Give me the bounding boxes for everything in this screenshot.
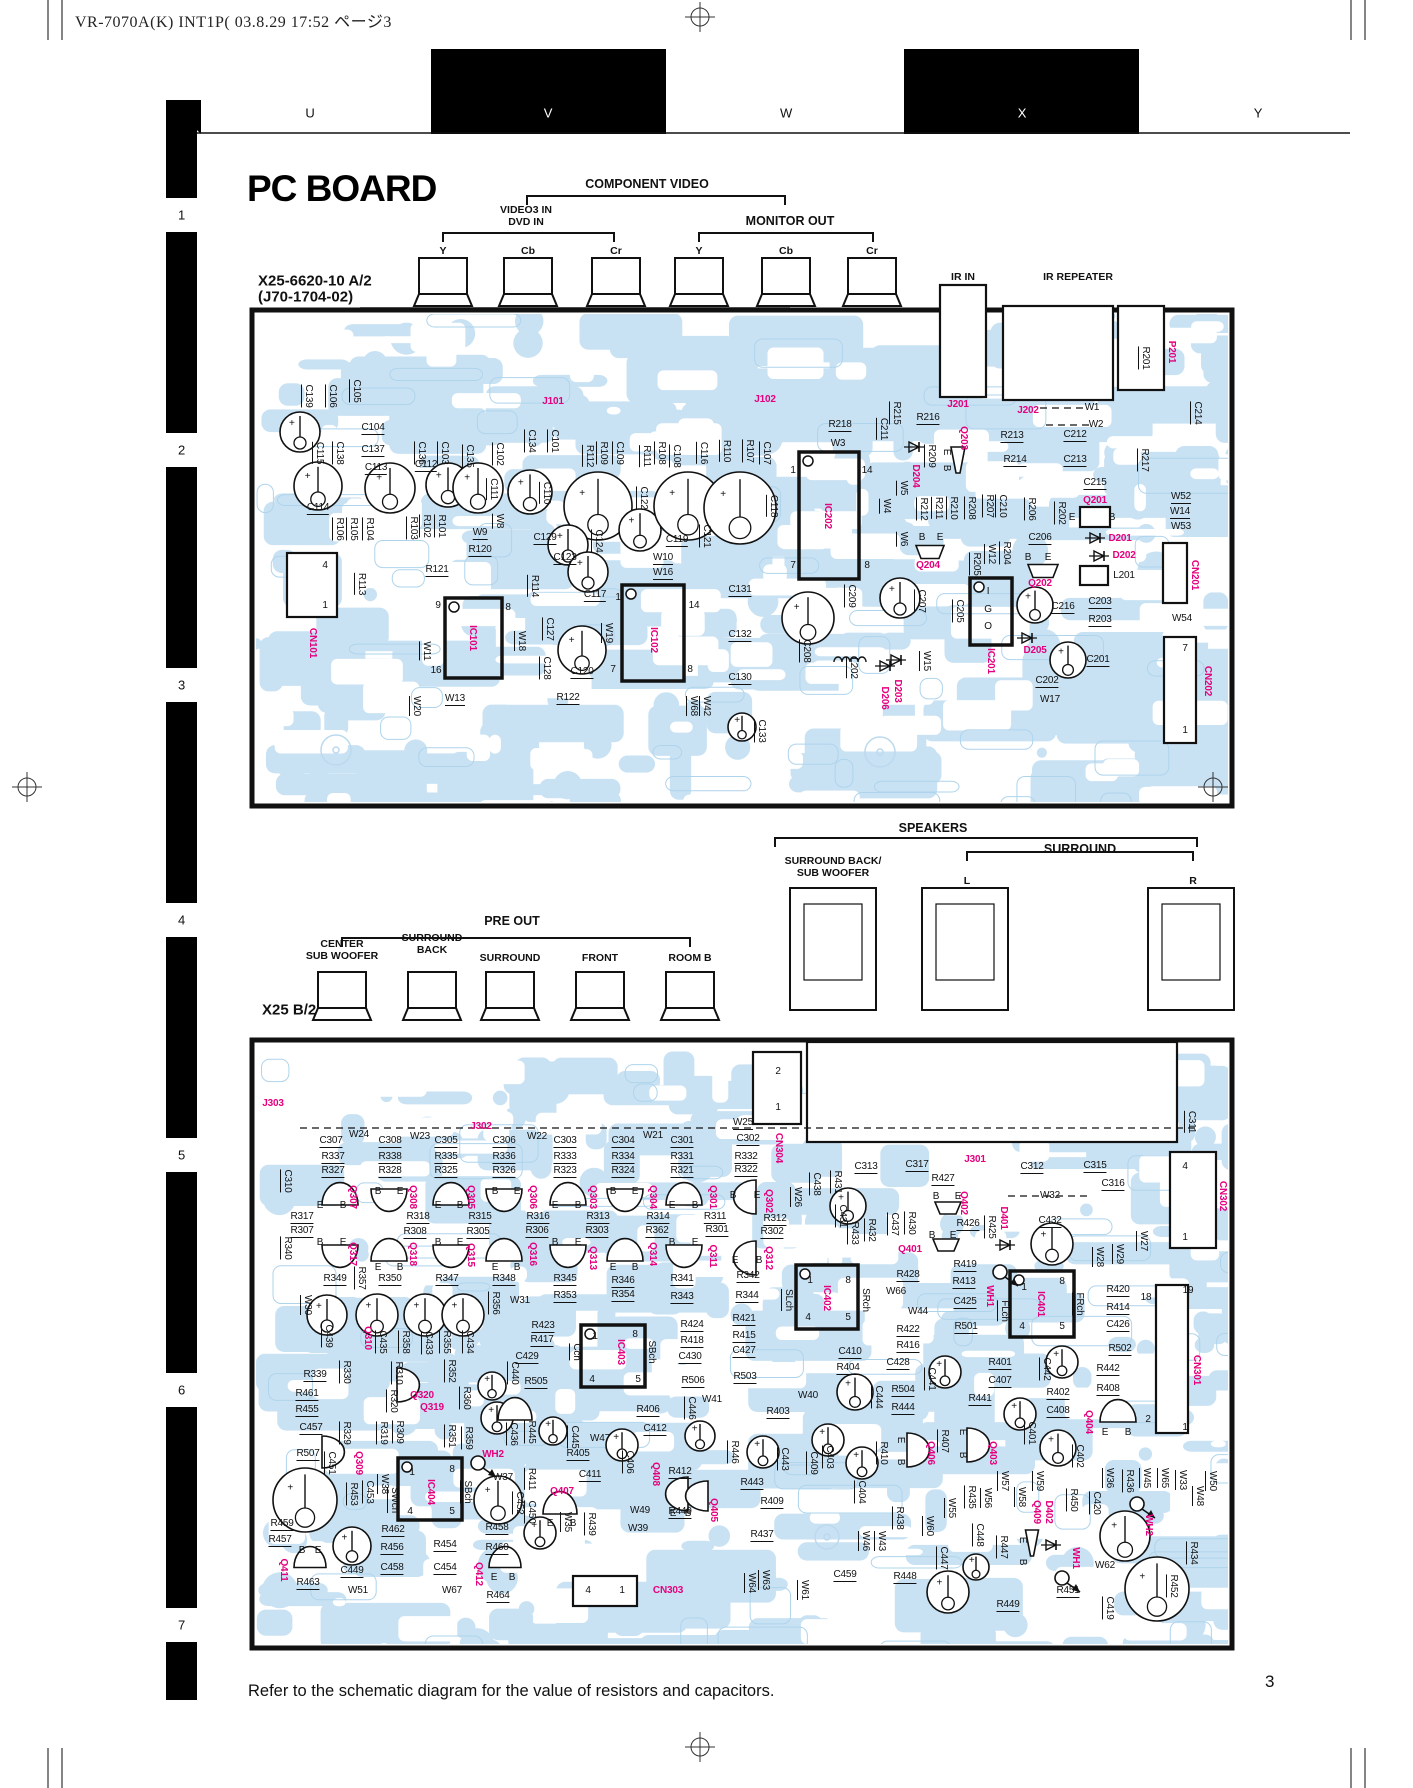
pin-label: B — [1017, 1559, 1027, 1565]
component-label: R111 — [639, 445, 651, 467]
ref-designator-label: Q315 — [465, 1243, 475, 1267]
component-label: R338 — [378, 1152, 401, 1164]
ref-designator-label: WH2 — [1143, 1514, 1153, 1536]
section-label: SURROUND BACK/ — [785, 856, 882, 867]
ref-designator-label: J303 — [262, 1099, 283, 1109]
ruler-letter: Y — [1254, 107, 1262, 120]
pin-label: B — [933, 1192, 939, 1202]
section-label: R — [1189, 876, 1197, 887]
ruler-letter: U — [305, 107, 314, 120]
pin-label: W21 — [643, 1131, 663, 1141]
component-label: C457 — [299, 1423, 322, 1435]
pin-label: E — [514, 1187, 520, 1197]
component-label: R208 — [964, 496, 976, 519]
component-label: R504 — [891, 1385, 914, 1397]
component-label: W27 — [1136, 1231, 1148, 1251]
component-label: R311 — [704, 1212, 726, 1224]
component-label: R410 — [876, 1441, 888, 1464]
pin-label: 7 — [610, 665, 615, 675]
component-label: C402 — [1072, 1444, 1084, 1467]
component-label: W26 — [790, 1187, 802, 1207]
component-label: R463 — [296, 1578, 319, 1590]
component-label: R422 — [896, 1325, 919, 1337]
component-label: W45 — [1139, 1468, 1151, 1488]
component-label: R453 — [346, 1482, 358, 1505]
pin-label: E — [491, 1573, 497, 1583]
pin-label: 1 — [619, 1586, 624, 1596]
component-label: C430 — [678, 1352, 701, 1364]
pin-label: W49 — [630, 1506, 650, 1516]
component-label: C437 — [887, 1212, 899, 1235]
component-label: R340 — [280, 1236, 292, 1259]
component-label: R448 — [893, 1572, 916, 1584]
component-label: C434 — [462, 1330, 474, 1353]
pin-label: 4 — [322, 561, 327, 571]
component-label: R426 — [956, 1219, 979, 1231]
pin-label: B — [457, 1201, 463, 1211]
component-label: W15 — [919, 651, 931, 671]
pin-label: 8 — [845, 1276, 850, 1286]
ref-designator-label: J302 — [470, 1122, 491, 1132]
pin-label: E — [315, 1546, 321, 1556]
pin-label: E — [610, 1263, 616, 1273]
section-label: SPEAKERS — [899, 822, 968, 835]
component-label: R439 — [584, 1512, 596, 1535]
pin-label: 1 — [1182, 1233, 1187, 1243]
ruler-letter: X — [1018, 107, 1026, 120]
component-label: R108 — [654, 441, 666, 464]
pin-label: E — [941, 449, 951, 455]
component-label: R333 — [553, 1152, 576, 1164]
pin-label: E — [575, 1238, 581, 1248]
ref-designator-label: WH2 — [482, 1450, 504, 1460]
ref-designator-label: Q302 — [763, 1189, 773, 1213]
component-label: R416 — [896, 1341, 919, 1353]
component-label: R114 — [527, 575, 539, 597]
component-label: W19 — [601, 623, 613, 643]
section-label: SUB WOOFER — [797, 868, 869, 879]
pin-label: 1 — [592, 1332, 597, 1342]
pin-label: E — [1017, 1537, 1027, 1543]
component-label: R446 — [727, 1440, 739, 1463]
section-label: SURROUND — [1044, 843, 1116, 856]
ref-designator-label: Q309 — [353, 1451, 363, 1475]
component-label: W20 — [409, 696, 421, 716]
component-label: R324 — [611, 1166, 634, 1178]
component-label: W14 — [1170, 507, 1190, 519]
pin-label: W17 — [1040, 695, 1060, 705]
pin-label: W24 — [349, 1130, 369, 1140]
component-label: W33 — [1175, 1470, 1187, 1490]
pin-label: 4 — [407, 1507, 412, 1517]
component-label: C108 — [669, 444, 681, 467]
section-label: COMPONENT VIDEO — [585, 178, 709, 191]
pin-label: B — [317, 1238, 323, 1248]
section-label: IR IN — [951, 272, 975, 283]
pin-label: 8 — [864, 561, 869, 571]
component-label: R402 — [1046, 1388, 1069, 1400]
component-label: R335 — [434, 1152, 457, 1164]
pin-label: W1 — [1085, 403, 1100, 413]
pin-label: W2 — [1089, 420, 1104, 430]
component-label: R303 — [585, 1226, 608, 1238]
pin-label: E — [957, 1429, 967, 1435]
ref-designator-label: D202 — [1112, 551, 1135, 561]
component-label: R112 — [582, 445, 594, 467]
ref-designator-label: IC401 — [1035, 1291, 1045, 1317]
component-label: W28 — [1092, 1247, 1104, 1267]
component-label: R106 — [332, 517, 344, 540]
component-label: W18 — [514, 631, 526, 651]
component-label: R358 — [398, 1330, 410, 1353]
component-label: C305 — [434, 1136, 457, 1148]
component-label: R452 — [1166, 1574, 1178, 1597]
component-label: R420 — [1106, 1285, 1129, 1297]
component-label: C104 — [361, 423, 384, 435]
component-label: R301 — [705, 1225, 728, 1237]
component-label: C118 — [766, 495, 778, 517]
component-label: C119 — [666, 535, 688, 547]
footer-note: Refer to the schematic diagram for the v… — [248, 1682, 774, 1701]
section-label: VIDEO3 IN — [500, 205, 552, 216]
component-label: R441 — [968, 1394, 991, 1406]
component-label: R346 — [611, 1276, 634, 1288]
pin-label: W40 — [798, 1391, 818, 1401]
ref-designator-label: Q408 — [650, 1462, 660, 1486]
ref-designator-label: CN303 — [653, 1586, 683, 1596]
ruler-letter: V — [544, 107, 552, 120]
ref-designator-label: CN301 — [1191, 1355, 1201, 1385]
component-label: R201 — [1138, 346, 1150, 369]
ruler-number: 4 — [178, 914, 185, 927]
pin-label: O — [984, 622, 992, 632]
manual-page: ++++++++++++++++++++++++++++++++++++++++… — [0, 0, 1413, 1788]
component-label: R419 — [953, 1260, 976, 1272]
ref-designator-label: IC403 — [615, 1339, 625, 1365]
component-label: R433 — [847, 1221, 859, 1244]
ref-designator-label: Q403 — [987, 1441, 997, 1465]
component-label: C213 — [1063, 455, 1086, 467]
component-label: C448 — [972, 1523, 984, 1546]
pin-label: W39 — [628, 1524, 648, 1534]
component-label: W55 — [944, 1498, 956, 1518]
component-label: C410 — [838, 1347, 861, 1359]
pin-label: B — [397, 1263, 403, 1273]
component-label: R434 — [1186, 1541, 1198, 1564]
pin-label: 5 — [449, 1507, 454, 1517]
ruler-number: 2 — [178, 444, 185, 457]
section-label: BACK — [417, 945, 447, 956]
component-label: W9 — [473, 528, 488, 540]
component-label: R362 — [645, 1226, 668, 1238]
ref-designator-label: Q409 — [1031, 1500, 1041, 1524]
ref-designator-label: D401 — [998, 1206, 1008, 1229]
component-label: R213 — [1000, 431, 1023, 443]
component-label: C431 — [835, 1204, 847, 1227]
component-label: R421 — [732, 1314, 755, 1326]
pin-label: B — [1125, 1428, 1131, 1438]
ruler-number: 7 — [178, 1619, 185, 1632]
pin-label: E — [937, 533, 943, 543]
pin-label: B — [552, 1238, 558, 1248]
ref-designator-label: Q203 — [958, 426, 968, 450]
pin-label: 4 — [805, 1313, 810, 1323]
pin-label: B — [632, 1263, 638, 1273]
pin-label: B — [669, 1238, 675, 1248]
component-label: W10 — [653, 553, 673, 565]
component-label: R217 — [1137, 448, 1149, 471]
pin-label: W54 — [1172, 614, 1192, 624]
pin-label: 1 — [615, 593, 620, 603]
component-label: C432 — [1038, 1216, 1061, 1228]
pin-label: B — [509, 1573, 515, 1583]
component-label: R449 — [996, 1600, 1019, 1612]
section-label: DVD IN — [508, 217, 544, 228]
component-label: C439 — [321, 1324, 333, 1347]
component-label: C442 — [1039, 1357, 1051, 1380]
section-label: FRONT — [582, 953, 618, 964]
component-label: R359 — [461, 1426, 473, 1449]
ref-designator-label: IC102 — [648, 627, 658, 653]
ref-designator-label: Q310 — [362, 1326, 372, 1350]
component-label: R104 — [362, 517, 374, 540]
component-label: R329 — [339, 1421, 351, 1444]
component-label: R107 — [742, 439, 754, 462]
component-label: R436 — [1122, 1469, 1134, 1492]
pin-label: 8 — [632, 1330, 637, 1340]
ref-designator-label: Q407 — [550, 1487, 574, 1497]
ruler-number: 5 — [178, 1149, 185, 1162]
component-label: R103 — [406, 516, 418, 539]
ref-designator-label: Q406 — [925, 1441, 935, 1465]
section-label: SUB WOOFER — [306, 951, 378, 962]
component-label: R315 — [468, 1212, 491, 1224]
pin-label: B — [514, 1263, 520, 1273]
pin-label: W53 — [1171, 522, 1191, 532]
component-label: C433 — [421, 1331, 433, 1354]
component-label: C138 — [332, 441, 344, 464]
component-label: C441 — [924, 1367, 936, 1390]
component-label: W60 — [922, 1516, 934, 1536]
ref-designator-label: IC404 — [425, 1479, 435, 1505]
component-label: C203 — [1088, 597, 1111, 609]
component-label: W56 — [980, 1488, 992, 1508]
component-label: R414 — [1106, 1303, 1129, 1315]
component-label: C111 — [486, 478, 498, 500]
component-label: R505 — [524, 1377, 547, 1389]
pin-label: B — [692, 1201, 698, 1211]
component-label: C419 — [1102, 1596, 1114, 1619]
component-label: C131 — [728, 585, 751, 597]
pin-label: B — [941, 465, 951, 471]
component-label: W5 — [896, 481, 908, 496]
component-label: R403 — [766, 1407, 789, 1419]
ruler-number: 6 — [178, 1384, 185, 1397]
component-label: C216 — [1051, 602, 1074, 614]
pin-label: B — [575, 1201, 581, 1211]
component-label: SLch — [781, 1289, 793, 1311]
component-label: C311 — [1184, 1111, 1196, 1133]
ref-designator-label: WH1 — [1070, 1547, 1080, 1569]
pin-label: B — [957, 1452, 967, 1458]
pin-label: W41 — [702, 1395, 722, 1405]
component-label: R206 — [1024, 497, 1036, 520]
component-label: C451 — [324, 1451, 336, 1474]
label-layer: UVWXYCOMPONENT VIDEOVIDEO3 INDVD INMONIT… — [0, 0, 1413, 1788]
component-label: R407 — [937, 1429, 949, 1452]
component-label: C116 — [696, 442, 708, 464]
pin-label: E — [1069, 513, 1075, 523]
pin-label: 8 — [505, 603, 510, 613]
ref-designator-label: J102 — [754, 395, 775, 405]
ref-designator-label: Q402 — [958, 1191, 968, 1215]
component-label: R339 — [303, 1370, 326, 1382]
component-label: W30 — [300, 1295, 312, 1315]
component-label: C307 — [319, 1136, 342, 1148]
component-label: R205 — [969, 552, 981, 575]
component-label: R122 — [556, 693, 579, 705]
section-label: Y — [439, 246, 446, 257]
component-label: C312 — [1020, 1162, 1043, 1174]
component-label: R308 — [403, 1227, 426, 1239]
component-label: R310 — [391, 1361, 403, 1384]
ref-designator-label: D201 — [1108, 534, 1131, 544]
pin-label: L201 — [1113, 571, 1134, 581]
component-label: C206 — [1028, 533, 1051, 545]
component-label: C315 — [1083, 1161, 1106, 1173]
component-label: C113 — [365, 463, 387, 475]
ref-designator-label: Q317 — [347, 1242, 357, 1266]
component-label: R321 — [670, 1166, 693, 1178]
component-label: C452 — [512, 1491, 524, 1514]
component-label: R334 — [611, 1152, 634, 1164]
component-label: W57 — [997, 1471, 1009, 1491]
ref-designator-label: Q201 — [1083, 496, 1107, 506]
component-label: W11 — [419, 641, 431, 660]
component-label: C450 — [524, 1500, 536, 1523]
pin-label: E — [754, 1191, 760, 1201]
ref-designator-label: IC201 — [985, 648, 995, 674]
pin-label: 16 — [431, 666, 442, 676]
component-label: C120 — [570, 667, 593, 679]
component-label: C306 — [492, 1136, 515, 1148]
component-label: W25 — [733, 1118, 753, 1130]
ref-designator-label: Q412 — [473, 1562, 483, 1586]
ref-designator-label: D203 — [892, 679, 902, 702]
component-label: R408 — [1096, 1384, 1119, 1396]
pin-label: B — [1025, 553, 1031, 563]
pin-label: E — [547, 1519, 553, 1529]
component-label: C134 — [524, 429, 536, 452]
component-label: W12 — [984, 544, 996, 564]
pin-label: 1 — [1182, 726, 1187, 736]
component-label: C214 — [1190, 401, 1202, 424]
component-label: R462 — [381, 1525, 404, 1537]
pin-label: E — [397, 1187, 403, 1197]
component-label: R211 — [931, 497, 943, 519]
component-label: R353 — [553, 1291, 576, 1303]
pin-label: 19 — [1183, 1286, 1194, 1296]
component-label: C201 — [1086, 655, 1109, 667]
component-label: C453 — [362, 1480, 374, 1503]
component-label: R409 — [760, 1497, 783, 1509]
component-label: C210 — [995, 494, 1007, 517]
component-label: R332 — [734, 1152, 757, 1164]
component-label: R502 — [1108, 1344, 1131, 1356]
ref-designator-label: D402 — [1043, 1500, 1053, 1523]
pin-label: W3 — [831, 439, 846, 449]
component-label: R323 — [553, 1166, 576, 1178]
ref-designator-label: CN304 — [773, 1133, 783, 1163]
component-label: R415 — [732, 1331, 755, 1343]
component-label: R418 — [680, 1336, 703, 1348]
pin-label: W31 — [510, 1296, 530, 1306]
component-label: R207 — [982, 494, 994, 517]
component-label: R438 — [892, 1506, 904, 1529]
component-label: W52 — [1171, 492, 1191, 504]
component-label: C407 — [988, 1376, 1011, 1388]
ref-designator-label: Q401 — [898, 1245, 922, 1255]
component-label: W8 — [492, 514, 504, 529]
ref-designator-label: Q318 — [407, 1242, 417, 1266]
pin-label: B — [435, 1238, 441, 1248]
ref-designator-label: Q316 — [527, 1242, 537, 1266]
component-label: C438 — [809, 1172, 821, 1195]
component-label: R113 — [354, 573, 366, 595]
component-label: R317 — [290, 1212, 313, 1224]
component-label: W36 — [1102, 1468, 1114, 1488]
component-label: C127 — [542, 617, 554, 640]
component-label: R322 — [734, 1165, 757, 1177]
component-label: W13 — [445, 694, 465, 706]
pin-label: W66 — [886, 1287, 906, 1297]
section-label: IR REPEATER — [1043, 272, 1113, 283]
component-label: C137 — [361, 445, 384, 457]
component-label: C133 — [754, 719, 766, 742]
component-label: R302 — [760, 1227, 783, 1239]
component-label: C425 — [953, 1297, 976, 1309]
pin-label: W37 — [493, 1473, 513, 1483]
ref-designator-label: Q307 — [347, 1185, 357, 1209]
component-label: FLch — [997, 1300, 1009, 1321]
component-label: C106 — [325, 384, 337, 407]
component-label: R326 — [492, 1166, 515, 1178]
component-label: W61 — [797, 1580, 809, 1600]
pin-label: B — [492, 1187, 498, 1197]
component-label: R430 — [904, 1211, 916, 1234]
component-label: C209 — [844, 584, 856, 607]
pin-label: E — [895, 1437, 905, 1443]
component-label: W58 — [1014, 1487, 1026, 1507]
component-label: C313 — [854, 1162, 877, 1174]
ref-designator-label: CN202 — [1202, 666, 1212, 696]
component-label: R305 — [466, 1227, 489, 1239]
pin-label: E — [552, 1201, 558, 1211]
component-label: R320 — [386, 1389, 398, 1412]
component-label: C135 — [462, 444, 474, 467]
component-label: W4 — [879, 499, 891, 514]
component-label: W63 — [758, 1570, 770, 1590]
ref-designator-label: J202 — [1017, 406, 1038, 416]
pin-label: E — [457, 1238, 463, 1248]
component-label: W6 — [896, 532, 908, 547]
component-label: C105 — [349, 379, 361, 402]
pin-label: B — [730, 1191, 736, 1201]
ref-designator-label: Q313 — [587, 1246, 597, 1270]
component-label: C128 — [539, 656, 551, 679]
component-label: C115 — [312, 442, 324, 464]
component-label: R432 — [864, 1218, 876, 1241]
